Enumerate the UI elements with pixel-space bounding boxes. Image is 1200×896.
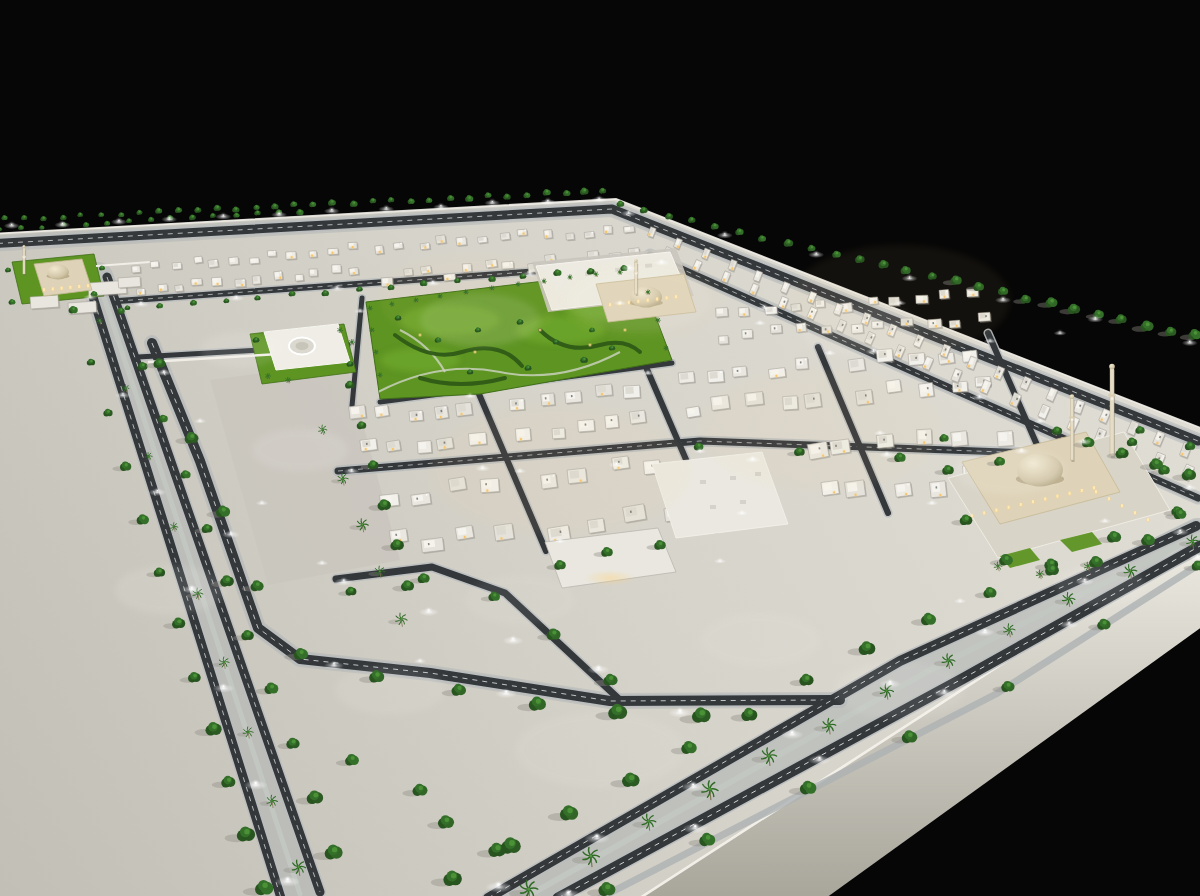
shape bbox=[920, 384, 928, 392]
shape bbox=[624, 329, 625, 330]
villa bbox=[349, 405, 368, 421]
shape bbox=[43, 217, 45, 219]
light-pool bbox=[700, 613, 820, 667]
shape bbox=[139, 211, 141, 213]
street-light bbox=[879, 452, 895, 458]
shape bbox=[22, 255, 26, 259]
street-light bbox=[148, 489, 166, 496]
shape bbox=[461, 413, 463, 415]
shape bbox=[333, 663, 335, 665]
shape bbox=[958, 389, 960, 391]
shape bbox=[353, 272, 355, 274]
lit-arch-window bbox=[1069, 492, 1071, 495]
shape bbox=[953, 433, 962, 442]
shape bbox=[223, 215, 224, 216]
lit-arch-window bbox=[1095, 490, 1097, 493]
shape bbox=[271, 800, 273, 802]
warm-wash bbox=[380, 255, 560, 345]
shape bbox=[352, 246, 354, 248]
street-light bbox=[4, 223, 20, 229]
shape bbox=[1095, 558, 1099, 562]
villa bbox=[738, 307, 750, 318]
shape bbox=[178, 208, 180, 210]
shape bbox=[865, 644, 870, 649]
shape bbox=[597, 386, 606, 393]
shape bbox=[560, 540, 561, 541]
shape bbox=[515, 402, 517, 404]
shape bbox=[714, 224, 716, 226]
shape bbox=[990, 340, 991, 341]
street-light bbox=[971, 394, 987, 400]
shape bbox=[1007, 683, 1011, 687]
shape bbox=[1021, 449, 1022, 450]
shape bbox=[291, 292, 293, 294]
street-light bbox=[608, 462, 624, 468]
shape bbox=[589, 855, 592, 858]
shape bbox=[1189, 443, 1192, 446]
shape bbox=[527, 888, 530, 891]
shape bbox=[293, 202, 295, 204]
lit-arch-window bbox=[78, 285, 80, 288]
street-light bbox=[1087, 316, 1103, 322]
shape bbox=[197, 208, 199, 210]
shape bbox=[647, 291, 648, 292]
shape bbox=[255, 782, 257, 784]
shape bbox=[30, 295, 59, 309]
villa bbox=[267, 251, 277, 258]
shape bbox=[279, 213, 280, 214]
shape bbox=[397, 316, 399, 318]
shape bbox=[567, 234, 571, 238]
shape bbox=[798, 449, 801, 452]
street-light bbox=[1076, 439, 1092, 445]
shape bbox=[873, 350, 874, 351]
shape bbox=[720, 337, 725, 342]
street-light bbox=[475, 465, 491, 471]
shape bbox=[511, 400, 519, 407]
street-light bbox=[1182, 340, 1198, 346]
shape bbox=[625, 227, 631, 231]
shape bbox=[805, 676, 809, 680]
villa bbox=[595, 384, 614, 398]
villa bbox=[456, 237, 468, 248]
shape bbox=[173, 263, 178, 267]
shape bbox=[118, 276, 141, 288]
shape bbox=[1068, 622, 1069, 623]
shape bbox=[191, 587, 193, 589]
park-light bbox=[538, 328, 543, 333]
model-scene-canvas bbox=[0, 0, 1200, 896]
shape bbox=[151, 262, 155, 266]
street-light bbox=[324, 208, 340, 214]
shape bbox=[457, 404, 466, 412]
shape bbox=[482, 466, 483, 467]
shape bbox=[441, 240, 443, 242]
shape bbox=[1060, 332, 1061, 333]
shape bbox=[619, 271, 620, 272]
shape bbox=[700, 450, 701, 451]
shape bbox=[557, 270, 559, 272]
shape bbox=[830, 352, 831, 353]
shape bbox=[1179, 510, 1183, 514]
shape bbox=[493, 593, 496, 596]
service-building bbox=[30, 295, 60, 311]
shape bbox=[609, 676, 613, 680]
shape bbox=[529, 272, 530, 273]
villa bbox=[678, 371, 696, 385]
shape bbox=[585, 232, 590, 236]
shape bbox=[706, 835, 711, 840]
shape bbox=[559, 562, 562, 565]
lit-arch-window bbox=[43, 288, 45, 291]
shape bbox=[567, 808, 572, 813]
shape bbox=[491, 277, 493, 279]
shape bbox=[978, 284, 981, 287]
shape bbox=[360, 310, 361, 311]
shape bbox=[1068, 598, 1070, 600]
street-light bbox=[433, 204, 449, 210]
street-light bbox=[111, 219, 127, 225]
shape bbox=[350, 588, 353, 591]
shape bbox=[567, 891, 569, 893]
shape bbox=[365, 448, 367, 450]
shape bbox=[1039, 573, 1040, 574]
shape bbox=[118, 220, 119, 221]
shape bbox=[539, 329, 540, 330]
shape bbox=[361, 423, 364, 426]
shape bbox=[569, 276, 570, 277]
shape bbox=[519, 320, 521, 322]
shape bbox=[724, 233, 725, 234]
park-light bbox=[623, 328, 628, 333]
shape bbox=[1194, 331, 1198, 335]
street-light bbox=[344, 468, 360, 474]
shape bbox=[1129, 570, 1131, 572]
shape bbox=[1110, 368, 1114, 456]
shape bbox=[811, 246, 813, 248]
shape bbox=[752, 458, 753, 459]
shape bbox=[310, 270, 314, 274]
shape bbox=[584, 570, 636, 586]
shape bbox=[379, 251, 381, 253]
shape bbox=[1070, 418, 1074, 422]
shape bbox=[227, 778, 231, 782]
shape bbox=[760, 322, 761, 323]
shape bbox=[424, 246, 426, 248]
shape bbox=[251, 259, 256, 262]
street-light bbox=[514, 469, 527, 474]
street-light bbox=[334, 578, 353, 586]
street-light bbox=[182, 586, 202, 594]
villa bbox=[951, 431, 970, 448]
shape bbox=[859, 256, 862, 259]
shape bbox=[1005, 556, 1009, 560]
street-light bbox=[329, 285, 345, 291]
shape bbox=[648, 372, 649, 373]
shape bbox=[101, 213, 103, 215]
street-light bbox=[714, 559, 727, 564]
street-light bbox=[1075, 578, 1094, 586]
shape bbox=[880, 432, 881, 433]
shape bbox=[176, 286, 180, 290]
street-light bbox=[668, 708, 692, 718]
shape bbox=[1040, 420, 1041, 421]
shape bbox=[999, 433, 1007, 442]
street-light bbox=[587, 665, 609, 674]
shape bbox=[883, 261, 886, 264]
shape bbox=[287, 379, 288, 380]
shape bbox=[546, 190, 548, 192]
shape bbox=[90, 360, 92, 362]
shape bbox=[444, 817, 449, 822]
shape bbox=[230, 258, 235, 262]
shape bbox=[351, 341, 352, 342]
shape bbox=[440, 416, 442, 418]
shape bbox=[351, 469, 352, 470]
street-light bbox=[1013, 448, 1029, 454]
shape bbox=[1121, 449, 1125, 453]
shape bbox=[620, 302, 621, 303]
shape bbox=[173, 526, 174, 527]
shape bbox=[410, 199, 412, 201]
villa bbox=[623, 226, 636, 235]
shape bbox=[465, 291, 466, 292]
shape bbox=[583, 358, 585, 360]
shape bbox=[943, 435, 946, 438]
shape bbox=[415, 418, 417, 420]
shape bbox=[768, 754, 771, 757]
shape bbox=[1109, 364, 1115, 370]
shape bbox=[150, 218, 152, 220]
villa bbox=[229, 257, 241, 267]
street-light bbox=[495, 689, 517, 698]
shape bbox=[274, 204, 276, 206]
shape bbox=[190, 434, 194, 438]
shape bbox=[1087, 565, 1088, 566]
street-light bbox=[222, 531, 240, 538]
shape bbox=[536, 699, 541, 704]
shape bbox=[909, 276, 910, 277]
shape bbox=[583, 189, 586, 192]
shape bbox=[139, 292, 141, 294]
shape bbox=[960, 600, 961, 601]
shape bbox=[331, 209, 332, 210]
villa bbox=[455, 402, 473, 418]
shape bbox=[244, 829, 249, 834]
street-light bbox=[894, 301, 907, 306]
street-light bbox=[83, 295, 97, 301]
shape bbox=[423, 281, 425, 283]
villa bbox=[250, 258, 261, 266]
shape bbox=[474, 351, 475, 352]
shape bbox=[1110, 397, 1114, 401]
shape bbox=[1189, 341, 1190, 342]
shape bbox=[464, 536, 466, 538]
street-light bbox=[275, 877, 301, 887]
shape bbox=[311, 254, 313, 256]
villa bbox=[686, 406, 702, 419]
shape bbox=[390, 198, 392, 200]
shape bbox=[439, 295, 440, 296]
shape bbox=[458, 243, 460, 245]
shape bbox=[520, 470, 521, 471]
shape bbox=[351, 756, 355, 760]
shape bbox=[420, 660, 421, 661]
street-light bbox=[316, 561, 329, 566]
villa bbox=[421, 537, 446, 554]
warm-wash bbox=[700, 370, 940, 490]
shape bbox=[41, 226, 43, 228]
shape bbox=[710, 505, 716, 509]
shape bbox=[324, 291, 326, 293]
shape bbox=[375, 672, 379, 676]
villa bbox=[543, 229, 553, 240]
shape bbox=[698, 444, 701, 447]
shape bbox=[209, 260, 214, 265]
shape bbox=[223, 686, 225, 688]
street-light bbox=[425, 280, 441, 286]
shape bbox=[120, 309, 122, 311]
shape bbox=[361, 415, 363, 417]
shape bbox=[931, 274, 934, 277]
shape bbox=[589, 252, 595, 256]
shape bbox=[372, 462, 375, 465]
shape bbox=[1070, 394, 1074, 398]
shape bbox=[11, 224, 12, 225]
shape bbox=[101, 266, 103, 268]
shape bbox=[380, 414, 382, 416]
shape bbox=[939, 494, 941, 496]
shape bbox=[192, 215, 194, 217]
lit-arch-window bbox=[1044, 497, 1046, 500]
street-light bbox=[464, 394, 477, 399]
shape bbox=[1105, 520, 1106, 521]
shape bbox=[1056, 428, 1059, 431]
villa bbox=[360, 438, 379, 453]
shape bbox=[800, 361, 802, 363]
shape bbox=[267, 375, 268, 376]
shape bbox=[905, 493, 907, 495]
shape bbox=[162, 416, 165, 419]
shape bbox=[20, 226, 22, 228]
lit-arch-window bbox=[1008, 506, 1010, 509]
shape bbox=[965, 516, 969, 520]
shape bbox=[761, 236, 763, 238]
shape bbox=[948, 360, 950, 362]
shape bbox=[517, 283, 518, 284]
shape bbox=[1146, 322, 1150, 326]
shape bbox=[905, 267, 908, 270]
villa bbox=[517, 229, 528, 237]
street-light bbox=[591, 197, 607, 203]
shape bbox=[127, 306, 129, 308]
shape bbox=[1131, 439, 1134, 442]
shape bbox=[200, 420, 201, 421]
shape bbox=[457, 527, 466, 535]
shape bbox=[740, 500, 746, 504]
shape bbox=[500, 537, 502, 539]
villa bbox=[332, 265, 343, 275]
shape bbox=[230, 532, 231, 533]
villa bbox=[435, 235, 447, 246]
shape bbox=[386, 207, 387, 208]
shape bbox=[730, 476, 736, 480]
light-pool bbox=[252, 428, 348, 471]
shape bbox=[331, 200, 333, 202]
street-light bbox=[975, 628, 995, 636]
shape bbox=[332, 252, 334, 254]
shape bbox=[372, 199, 374, 201]
shape bbox=[491, 287, 492, 288]
shape bbox=[1163, 467, 1166, 470]
villa bbox=[252, 275, 262, 285]
shape bbox=[90, 296, 91, 297]
shape bbox=[195, 257, 199, 261]
shape bbox=[552, 630, 556, 634]
street-light bbox=[554, 539, 567, 544]
shape bbox=[142, 516, 146, 520]
shape bbox=[512, 638, 514, 640]
shape bbox=[1108, 394, 1116, 396]
shape bbox=[910, 354, 919, 361]
shape bbox=[226, 577, 230, 581]
shape bbox=[748, 710, 753, 715]
street-light bbox=[156, 369, 172, 375]
shape bbox=[193, 301, 195, 303]
villa bbox=[732, 366, 748, 379]
shape bbox=[299, 210, 301, 212]
shape bbox=[297, 866, 299, 868]
villa bbox=[420, 243, 431, 251]
villa bbox=[603, 226, 613, 236]
shape bbox=[262, 883, 267, 888]
shape bbox=[679, 710, 681, 712]
shape bbox=[62, 223, 63, 224]
shape bbox=[477, 328, 479, 330]
shape bbox=[415, 299, 416, 300]
street-light bbox=[228, 295, 244, 301]
street-light bbox=[212, 684, 234, 693]
villa bbox=[375, 245, 385, 256]
shape bbox=[989, 589, 993, 593]
lit-arch-window bbox=[52, 287, 54, 290]
shape bbox=[943, 690, 945, 692]
street-light bbox=[194, 419, 207, 424]
shape bbox=[899, 454, 902, 457]
shape bbox=[1097, 311, 1100, 314]
shape bbox=[647, 820, 649, 822]
lit-arch-window bbox=[1032, 500, 1034, 503]
lit-arch-window bbox=[1134, 511, 1136, 514]
shape bbox=[158, 360, 161, 363]
street-light bbox=[1034, 419, 1047, 424]
shape bbox=[602, 189, 604, 191]
shape bbox=[616, 706, 622, 712]
shape bbox=[900, 302, 901, 303]
shape bbox=[159, 304, 161, 306]
shape bbox=[591, 328, 593, 330]
shape bbox=[566, 191, 568, 193]
shape bbox=[487, 193, 489, 195]
shape bbox=[1002, 298, 1003, 299]
shape bbox=[605, 884, 610, 889]
lit-arch-window bbox=[1121, 504, 1123, 507]
street-light bbox=[54, 222, 70, 228]
shape bbox=[236, 213, 238, 215]
shape bbox=[1139, 427, 1142, 430]
park-light bbox=[473, 350, 478, 355]
shape bbox=[148, 455, 149, 456]
